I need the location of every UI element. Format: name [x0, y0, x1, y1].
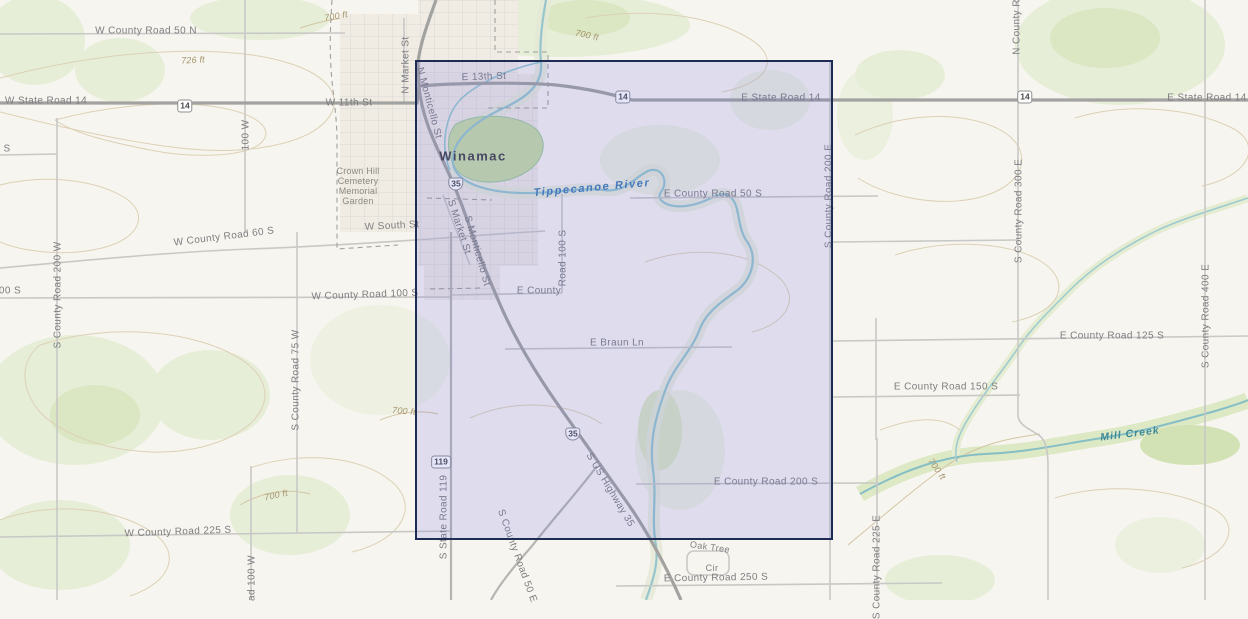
route-shield-14-east: 14 — [1017, 91, 1032, 104]
label-e-county-road-125-s: E County Road 125 S — [1060, 331, 1164, 342]
label-elev-700-bottomright: 700 ft — [926, 456, 948, 481]
label-mill-creek: Mill Creek — [1100, 424, 1161, 443]
label-elev-726: 726 ft — [181, 54, 205, 65]
label-w-county-road-50-n: W County Road 50 N — [95, 26, 197, 37]
label-s-county-road-300-e: S County Road 300 E — [1014, 159, 1025, 263]
label-cir: Cir — [706, 563, 719, 573]
label-w-county-road-100-s: W County Road 100 S — [311, 288, 418, 303]
label-e-county-road-150-s: E County Road 150 S — [894, 382, 998, 393]
label-oak-tree: Oak Tree — [689, 539, 730, 555]
label-e-state-road-14-right: E State Road 14 — [1167, 93, 1246, 104]
label-elev-700-bottomleft: 700 ft — [263, 488, 288, 503]
label-s-county-road-225-e: S County Road 225 E — [872, 515, 883, 619]
label-cemetery-line4: Garden — [342, 196, 373, 206]
label-w-state-road-14: W State Road 14 — [5, 96, 87, 107]
label-elev-700-topleft: 700 ft — [323, 9, 348, 23]
label-cemetery-line2: Cemetery — [338, 176, 379, 186]
label-w-county-road-60-s: W County Road 60 S — [173, 225, 275, 248]
label-e-county-road-250-s: E County Road 250 S — [664, 572, 769, 585]
label-partial-s: S — [3, 144, 10, 155]
label-elev-700-mid: 700 ft — [392, 405, 417, 417]
map-canvas[interactable]: W County Road 50 N W State Road 14 W 11t… — [0, 0, 1248, 600]
label-partial-ad-100-w: ad 100 W — [247, 555, 258, 601]
label-cemetery-line3: Memorial — [339, 186, 378, 196]
label-w-11th-st: W 11th St — [326, 98, 373, 109]
label-s-county-road-400-e: S County Road 400 E — [1201, 264, 1212, 368]
topo-map-screenshot: { "town": { "name": "Winamac" }, "water"… — [0, 0, 1248, 600]
route-shield-14-west: 14 — [177, 100, 192, 113]
label-n-county-road-partial: N County Ro — [1012, 0, 1023, 55]
label-partial-00-s: 00 S — [0, 286, 21, 297]
label-s-county-road-200-w: S County Road 200 W — [53, 241, 64, 348]
label-partial-100-w: 100 W — [241, 120, 252, 151]
selection-rectangle — [415, 60, 833, 540]
label-s-county-road-75-w: S County Road 75 W — [291, 329, 302, 430]
label-w-south-st: W South St — [364, 219, 419, 233]
label-n-market-st: N Market St — [401, 36, 412, 93]
label-w-county-road-225-s: W County Road 225 S — [124, 525, 231, 540]
label-elev-700-topcenter: 700 ft — [574, 28, 599, 43]
label-cemetery-line1: Crown Hill — [336, 166, 379, 176]
